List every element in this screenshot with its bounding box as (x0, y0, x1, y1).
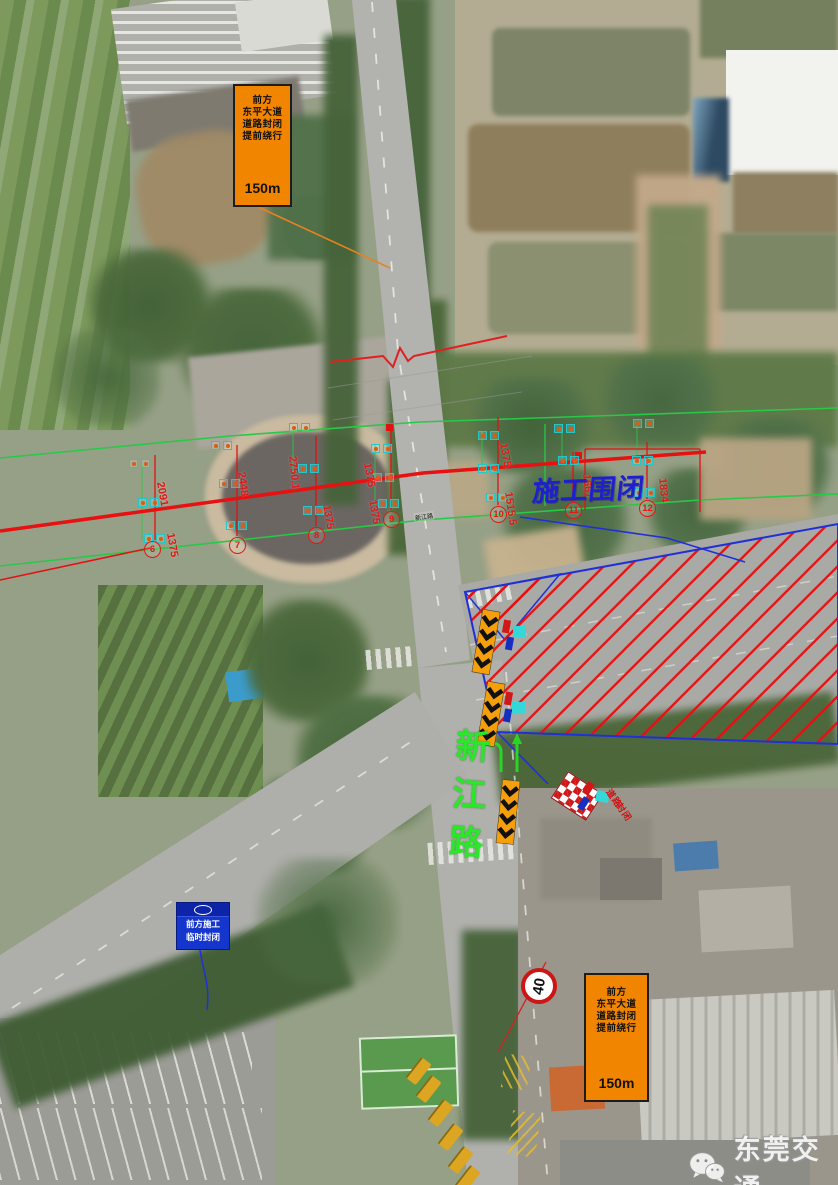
lane-dashes (372, 2, 446, 652)
break-line (330, 336, 507, 367)
closure-ahead-sign-top: 前方 东平大道 道路封闭 提前绕行 150m (233, 84, 292, 207)
aerial-construction-plan: 2091137524482750.113751375137513751515.5… (0, 0, 838, 1185)
construction-closure-label: 施工围闭 (531, 466, 648, 509)
sign-line: 提前绕行 (586, 1023, 647, 1035)
lane-dashes (506, 672, 548, 1185)
sign-line: 提前绕行 (235, 131, 290, 143)
blue-notice-sign: 前方施工 临时封闭 (176, 902, 230, 950)
cyan-barrier-block (513, 626, 526, 637)
survey-line (328, 356, 532, 388)
closure-boundary (497, 732, 548, 784)
lane-dashes (12, 737, 418, 1008)
survey-line (333, 392, 522, 420)
sign-leader-line (200, 950, 208, 1010)
closure-ahead-sign-bottom: 前方 东平大道 道路封闭 提前绕行 150m (584, 973, 649, 1102)
sign-distance: 150m (586, 1075, 647, 1091)
red-node (575, 452, 582, 459)
watermark-text: 东莞交通 (734, 1128, 838, 1185)
lane-arrow-head (512, 733, 522, 744)
cyan-barrier-block (512, 702, 525, 713)
sign-distance: 150m (235, 180, 290, 196)
cad-overlay (0, 0, 838, 1185)
speed-limit-value: 40 (529, 976, 549, 995)
sign-line: 东平大道 (235, 107, 290, 119)
red-node (386, 424, 393, 431)
sign-line: 前方 (235, 95, 290, 107)
sign-line: 东平大道 (586, 999, 647, 1011)
wechat-icon (688, 1149, 726, 1185)
sign-leader-line (256, 206, 390, 268)
sign-line: 道路封闭 (235, 119, 290, 131)
green-survey-line (0, 408, 838, 458)
watermark: 东莞交通 (688, 1128, 838, 1185)
agency-logo-icon (194, 905, 212, 915)
sign-line: 前方施工 (177, 919, 229, 930)
sign-line: 前方 (586, 987, 647, 999)
blue-sign-header (177, 903, 229, 917)
speed-limit-sign: 40 (521, 968, 557, 1004)
sign-line: 临时封闭 (177, 932, 229, 943)
sign-line: 道路封闭 (586, 1011, 647, 1023)
